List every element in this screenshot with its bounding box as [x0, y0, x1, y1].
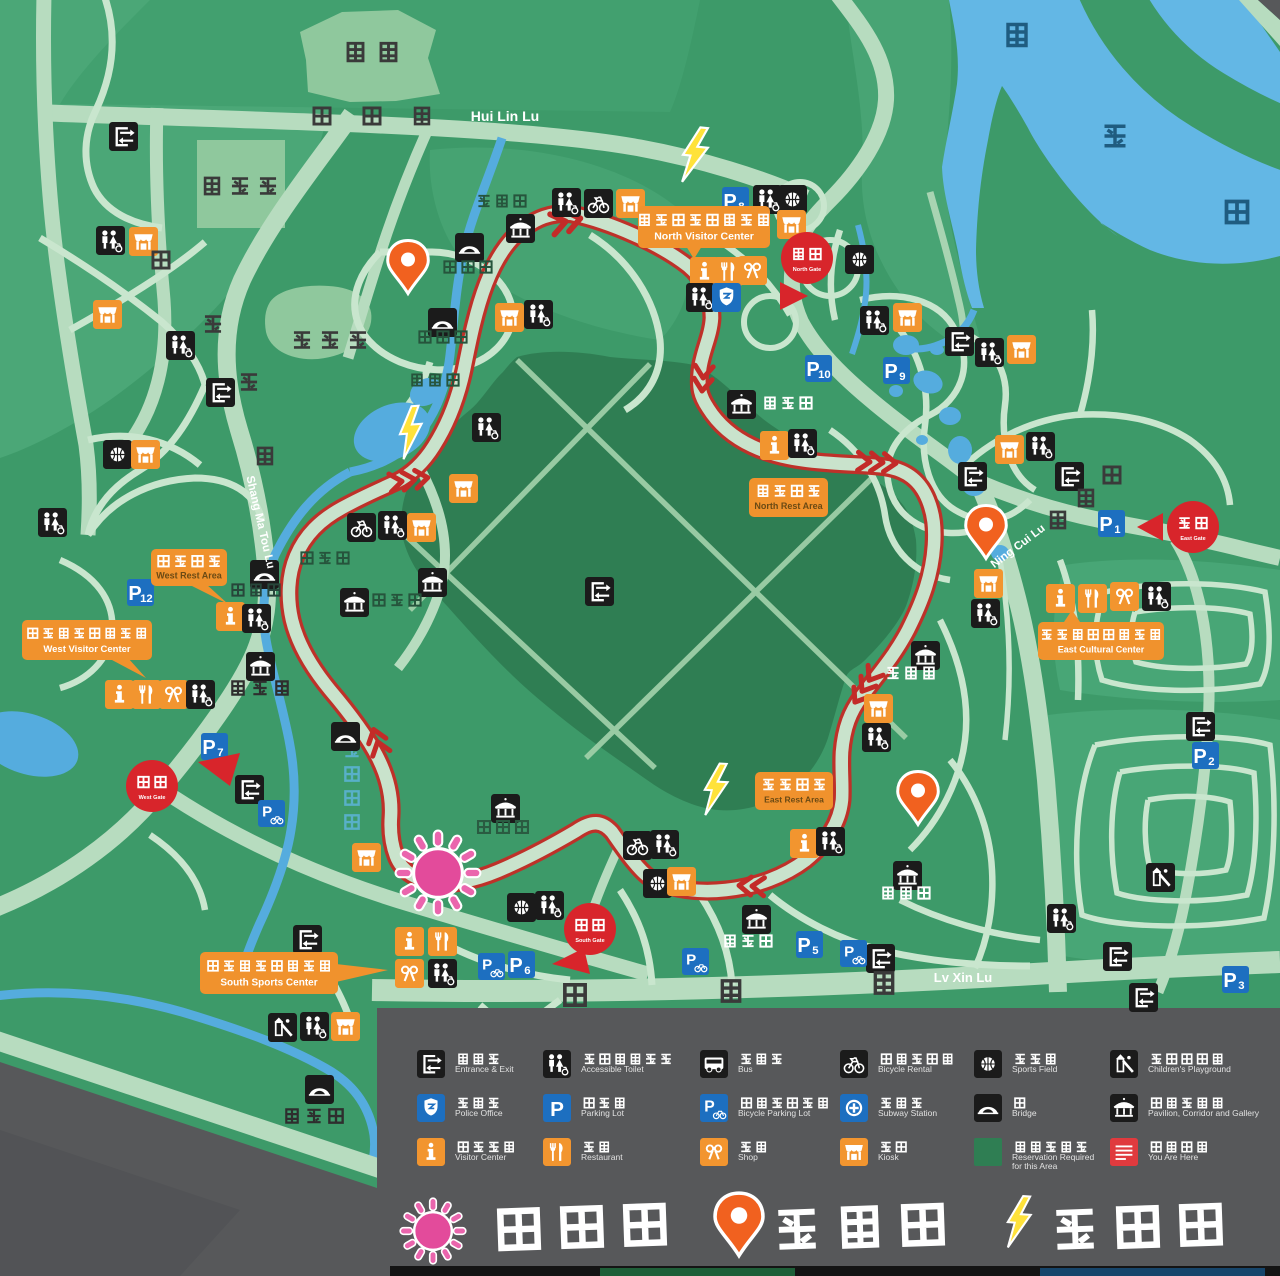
svg-text:Bicycle Rental: Bicycle Rental — [878, 1064, 932, 1074]
svg-text:Parking Lot: Parking Lot — [581, 1108, 625, 1118]
svg-text:3: 3 — [1238, 980, 1244, 992]
svg-text:5: 5 — [812, 945, 818, 957]
svg-text:P: P — [1099, 514, 1112, 536]
svg-text:P: P — [550, 1098, 564, 1121]
svg-text:Police Office: Police Office — [455, 1108, 503, 1118]
svg-text:West Visitor Center: West Visitor Center — [43, 644, 131, 655]
svg-text:Bicycle Parking Lot: Bicycle Parking Lot — [738, 1108, 811, 1118]
svg-text:Accessible Toilet: Accessible Toilet — [581, 1064, 644, 1074]
svg-text:East Cultural Center: East Cultural Center — [1058, 644, 1145, 654]
svg-text:Sports Field: Sports Field — [1012, 1064, 1058, 1074]
svg-text:East Rest Area: East Rest Area — [764, 794, 824, 804]
svg-text:1: 1 — [1114, 524, 1120, 536]
svg-text:West Rest Area: West Rest Area — [156, 571, 223, 581]
svg-text:Pavilion, Corridor and Gallery: Pavilion, Corridor and Gallery — [1148, 1108, 1260, 1118]
svg-text:Bus: Bus — [738, 1064, 753, 1074]
svg-text:North Visitor Center: North Visitor Center — [654, 231, 754, 243]
svg-text:Subway Station: Subway Station — [878, 1108, 937, 1118]
svg-text:Shop: Shop — [738, 1152, 758, 1162]
svg-text:P: P — [686, 952, 696, 969]
svg-text:P: P — [202, 737, 215, 759]
svg-text:P: P — [262, 804, 272, 821]
svg-text:North Gate: North Gate — [793, 267, 821, 273]
svg-text:Bridge: Bridge — [1012, 1108, 1037, 1118]
svg-text:Kiosk: Kiosk — [878, 1152, 900, 1162]
svg-text:North Rest Area: North Rest Area — [754, 501, 823, 511]
svg-text:6: 6 — [524, 965, 530, 977]
svg-text:P: P — [704, 1098, 714, 1115]
svg-text:P: P — [797, 935, 810, 957]
svg-text:10: 10 — [818, 369, 831, 381]
svg-text:West Gate: West Gate — [139, 795, 166, 801]
svg-text:Restaurant: Restaurant — [581, 1152, 623, 1162]
svg-text:P: P — [844, 944, 854, 961]
svg-text:Lv Xin Lu: Lv Xin Lu — [934, 970, 993, 985]
svg-text:P: P — [482, 957, 492, 974]
svg-text:South Gate: South Gate — [575, 938, 604, 944]
svg-text:Hui Lin Lu: Hui Lin Lu — [471, 108, 539, 124]
svg-text:for this Area: for this Area — [1012, 1161, 1058, 1171]
svg-text:12: 12 — [140, 593, 153, 605]
svg-text:2: 2 — [1208, 756, 1214, 768]
svg-text:P: P — [884, 361, 897, 383]
svg-text:You Are Here: You Are Here — [1148, 1152, 1199, 1162]
svg-text:P: P — [1223, 970, 1236, 992]
svg-text:South Sports Center: South Sports Center — [220, 978, 317, 989]
svg-text:Entrance & Exit: Entrance & Exit — [455, 1064, 514, 1074]
svg-text:East Gate: East Gate — [1180, 536, 1205, 542]
svg-text:P: P — [509, 955, 522, 977]
svg-text:9: 9 — [899, 371, 905, 383]
svg-text:P: P — [1193, 746, 1206, 768]
svg-text:Visitor Center: Visitor Center — [455, 1152, 507, 1162]
svg-text:Children's Playground: Children's Playground — [1148, 1064, 1231, 1074]
